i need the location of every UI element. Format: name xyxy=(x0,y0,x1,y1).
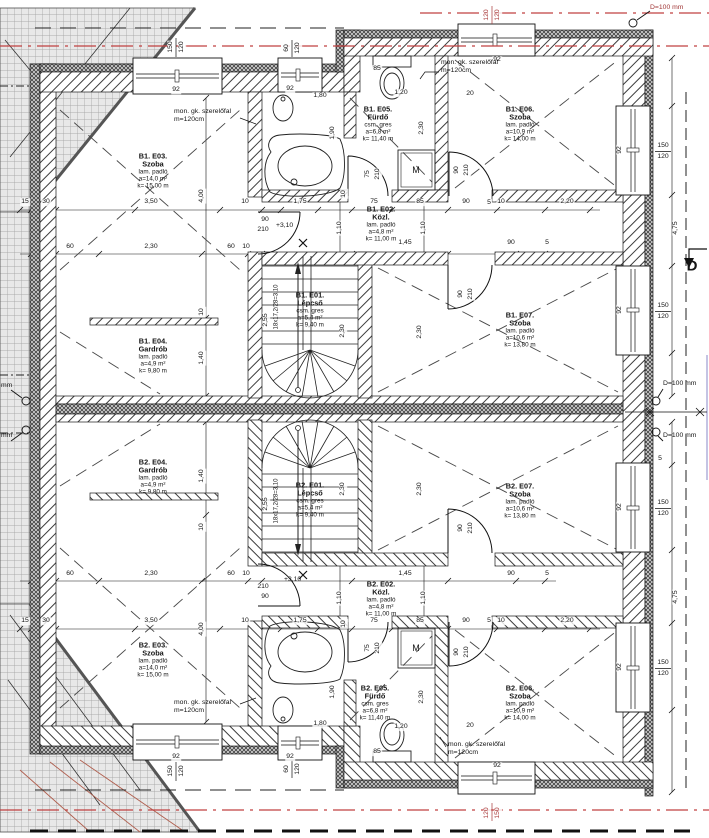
wall-partition xyxy=(90,318,218,325)
floor-plan-geometry xyxy=(0,0,709,838)
section-marker-arrow xyxy=(684,249,707,268)
unit-b1-geometry xyxy=(35,24,653,398)
wall-left xyxy=(40,64,56,754)
wall-interior xyxy=(248,92,262,197)
window xyxy=(133,24,650,355)
staircase xyxy=(262,256,358,398)
party-wall xyxy=(56,414,623,422)
level-mark-symbol xyxy=(299,239,307,247)
wall-stairwell-right xyxy=(358,252,372,398)
unit-b2-geometry xyxy=(35,420,653,794)
party-wall xyxy=(56,396,623,404)
bathtub xyxy=(265,134,345,196)
insulation-left xyxy=(30,64,40,754)
washbasin xyxy=(273,95,293,121)
floor-plan-drawing: B1. E03.Szobalam. padlóa=14,0 m²k= 15,00… xyxy=(0,0,709,838)
wall-bathroom-right xyxy=(435,56,448,190)
exterior-walls xyxy=(30,30,653,796)
washing-machine xyxy=(398,150,435,190)
wall-stairwell-left xyxy=(248,252,262,398)
toilet xyxy=(373,56,411,99)
party-wall-insulation xyxy=(56,404,623,414)
door-arc xyxy=(258,152,493,309)
service-lines-blue xyxy=(647,30,707,788)
